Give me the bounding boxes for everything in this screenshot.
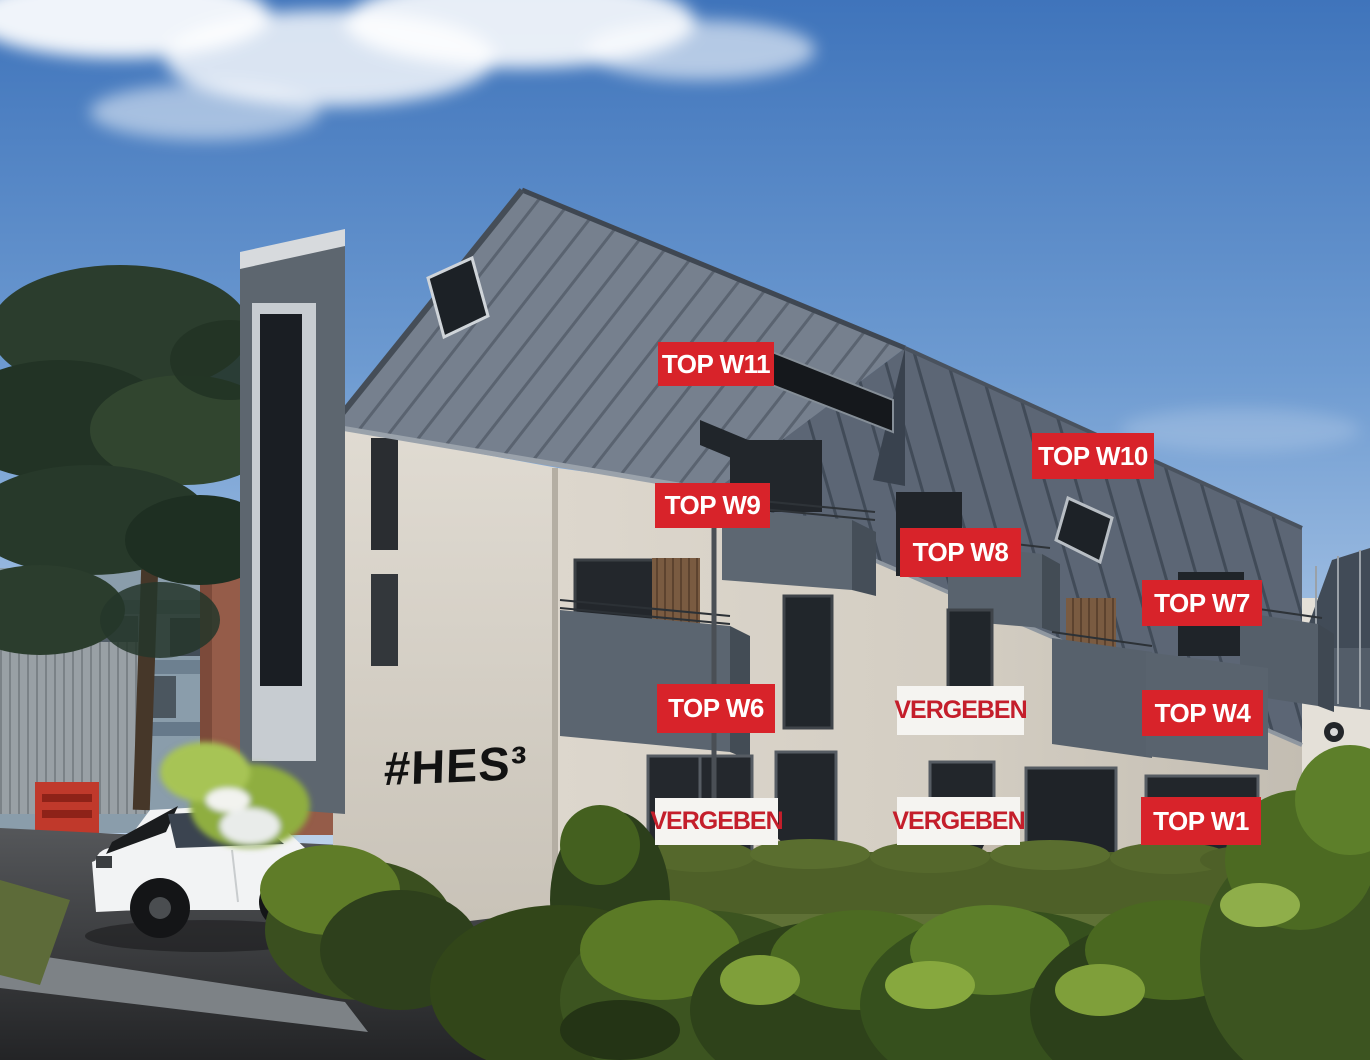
gable-window-upper	[371, 438, 398, 550]
property-rendering: TOP W11 TOP W10 TOP W9 TOP W8 TOP W7 TOP…	[0, 0, 1370, 1060]
unit-label-top-w6[interactable]: TOP W6	[657, 684, 775, 733]
balcony-mid	[1052, 638, 1152, 758]
hes3-logo: #HES³	[383, 735, 528, 796]
unit-label-top-w7[interactable]: TOP W7	[1142, 580, 1262, 626]
window-2f-a	[784, 596, 832, 728]
unit-label-top-w4[interactable]: TOP W4	[1142, 690, 1263, 736]
unit-label-top-w11[interactable]: TOP W11	[658, 342, 774, 386]
tower-window	[260, 314, 302, 686]
car-taillight	[96, 856, 112, 868]
unit-label-top-w10[interactable]: TOP W10	[1032, 433, 1154, 479]
pampas-plume	[220, 808, 280, 844]
unit-label-top-w8[interactable]: TOP W8	[900, 528, 1021, 577]
unit-label-top-w9[interactable]: TOP W9	[655, 483, 770, 528]
sold-label-upper-mid: VERGEBEN	[897, 686, 1024, 735]
gable-window-lower	[371, 574, 398, 666]
stair-tower	[240, 229, 345, 814]
sold-label-ground-mid: VERGEBEN	[897, 797, 1020, 845]
sold-label-ground-left: VERGEBEN	[655, 798, 778, 845]
scene-illustration	[0, 0, 1370, 1060]
unit-label-top-w1[interactable]: TOP W1	[1141, 797, 1261, 845]
